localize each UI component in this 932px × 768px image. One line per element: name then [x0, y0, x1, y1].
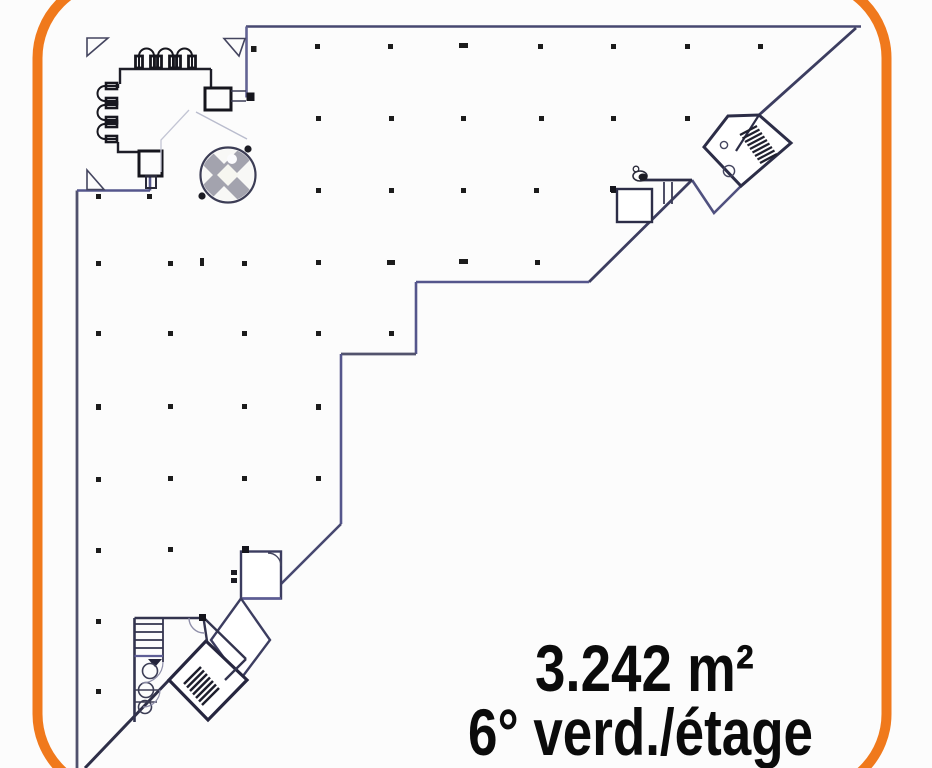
svg-text:3.242 m²: 3.242 m² [535, 631, 754, 705]
svg-text:6° verd./étage: 6° verd./étage [468, 695, 813, 768]
